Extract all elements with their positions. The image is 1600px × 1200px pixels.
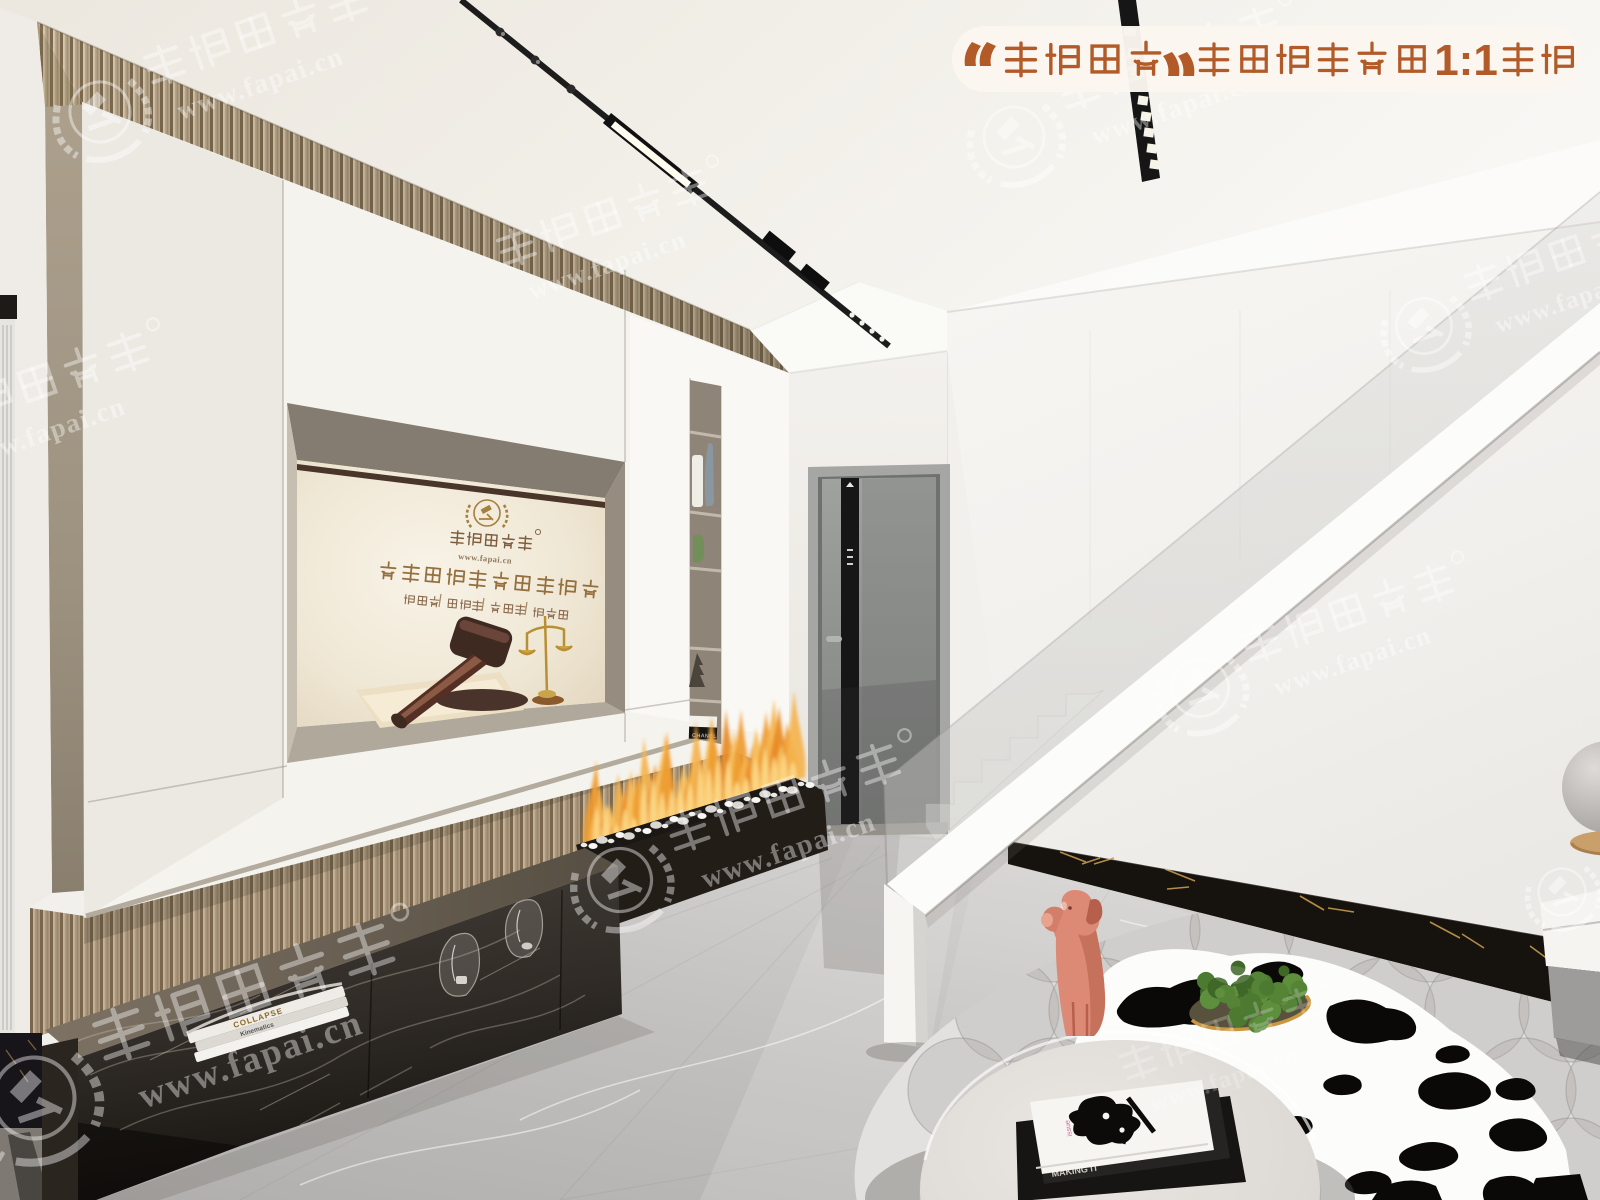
- svg-text:1:1: 1:1: [1434, 36, 1498, 85]
